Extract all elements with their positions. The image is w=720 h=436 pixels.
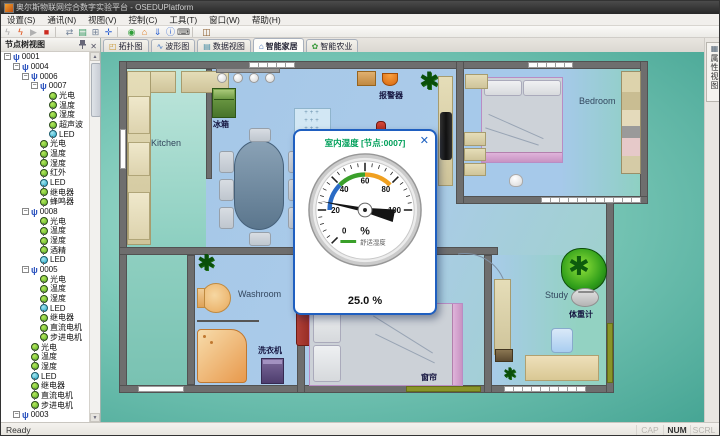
tree-item-label: 0006 bbox=[40, 72, 58, 81]
menu-item[interactable]: 窗口(W) bbox=[203, 14, 246, 26]
tree-item-红外[interactable]: 红外 bbox=[1, 168, 90, 178]
tree-item-湿度[interactable]: 湿度 bbox=[1, 362, 90, 372]
tree-item-label: 0001 bbox=[22, 52, 40, 61]
alarm-bracket[interactable] bbox=[357, 71, 376, 86]
tab-label: 智能家居 bbox=[266, 41, 298, 52]
light-bulb-2[interactable] bbox=[233, 73, 243, 83]
sensor-icon bbox=[49, 92, 57, 100]
bush-plant bbox=[561, 248, 607, 292]
window-bottom-right bbox=[504, 386, 586, 392]
toolbar-separator bbox=[117, 27, 123, 37]
sensor-icon bbox=[40, 295, 48, 303]
dining-chair bbox=[249, 128, 271, 142]
light-bulb-4[interactable] bbox=[265, 73, 275, 83]
washbasin-tank bbox=[197, 288, 205, 308]
menu-item[interactable]: 通讯(N) bbox=[41, 14, 82, 26]
tree-item-0001[interactable]: −ψ0001 bbox=[1, 52, 90, 62]
device-label-alarm: 报警器 bbox=[379, 90, 403, 101]
node-tree: −ψ0001−ψ0004−ψ0006−ψ0007光电温度湿度超声波LED光电温度… bbox=[1, 52, 90, 422]
sensor-icon bbox=[40, 159, 48, 167]
sensor-icon bbox=[31, 362, 39, 370]
dining-table bbox=[234, 140, 284, 230]
tree-item-0005[interactable]: −ψ0005 bbox=[1, 265, 90, 275]
status-bar: Ready CAPNUMSCRL bbox=[1, 422, 720, 436]
tree-item-温度[interactable]: 温度 bbox=[1, 284, 90, 294]
led-icon bbox=[40, 304, 48, 312]
tab-icon: ⌂ bbox=[259, 42, 264, 51]
plant-icon: ✱ bbox=[503, 367, 516, 383]
close-icon[interactable]: ✕ bbox=[420, 134, 429, 147]
washbasin bbox=[201, 283, 231, 313]
led-icon bbox=[40, 256, 48, 264]
alarm-dome[interactable] bbox=[382, 73, 398, 86]
svg-text:80: 80 bbox=[381, 185, 390, 194]
room-label-bedroom1: Bedroom bbox=[579, 96, 616, 106]
sensor-icon bbox=[40, 188, 48, 196]
tree-item-label: LED bbox=[41, 372, 57, 381]
fridge[interactable] bbox=[212, 88, 236, 118]
tree-item-温度[interactable]: 温度 bbox=[1, 226, 90, 236]
sensor-icon bbox=[40, 140, 48, 148]
bed-bottom bbox=[309, 303, 463, 386]
weight-scale[interactable] bbox=[571, 288, 599, 307]
shower-tub bbox=[197, 329, 247, 383]
svg-text:20: 20 bbox=[331, 206, 340, 215]
dining-chair bbox=[219, 207, 234, 229]
toolbar-info-icon[interactable]: ⓘ bbox=[164, 26, 177, 38]
sensor-icon bbox=[31, 382, 39, 390]
tree-item-湿度[interactable]: 湿度 bbox=[1, 158, 90, 168]
dialog-title: 室内湿度 [节点:0007] bbox=[295, 137, 435, 149]
sensor-icon bbox=[40, 150, 48, 158]
plant-icon: ✱ bbox=[197, 252, 215, 274]
gauge-unit: % bbox=[360, 226, 370, 238]
panel-header: 节点树视图 ✕ bbox=[1, 38, 100, 52]
kitchen-cabinet bbox=[128, 192, 150, 240]
tree-item-label: LED bbox=[50, 304, 66, 313]
room-label-kitchen: Kitchen bbox=[151, 138, 181, 148]
sensor-icon bbox=[31, 391, 39, 399]
tree-item-光电[interactable]: 光电 bbox=[1, 274, 90, 284]
property-view-tab[interactable]: ▦ 属性视图 bbox=[706, 42, 720, 102]
tab-智能农业[interactable]: ✿智能农业 bbox=[306, 39, 359, 53]
sensor-icon bbox=[40, 217, 48, 225]
led-icon bbox=[49, 130, 57, 138]
tree-item-蜂鸣器[interactable]: 蜂鸣器 bbox=[1, 197, 90, 207]
tree-item-label: 0007 bbox=[49, 81, 67, 90]
property-view-icon: ▦ bbox=[707, 44, 720, 53]
tree-item-label: 超声波 bbox=[59, 119, 83, 130]
toolbar-online-lightning-icon[interactable]: ϟ bbox=[14, 26, 27, 38]
toolbar-separator bbox=[192, 27, 198, 37]
tree-item-label: LED bbox=[59, 130, 75, 139]
title-bar: 奥尔斯物联网综合数字实验平台 - OSEDUPlatform bbox=[1, 1, 720, 14]
toolbar-exit-icon[interactable]: ◫ bbox=[200, 26, 213, 38]
bed-footer bbox=[452, 304, 462, 385]
tab-icon: ▤ bbox=[203, 42, 211, 51]
tab-波形图[interactable]: ∿波形图 bbox=[151, 39, 196, 53]
tree-item-0003[interactable]: −ψ0003 bbox=[1, 410, 90, 420]
toolbar-serial-icon[interactable]: ⇄ bbox=[63, 26, 76, 38]
plant-icon: ✱ bbox=[419, 70, 439, 94]
cabinet-block bbox=[464, 163, 486, 176]
study-shelf-base bbox=[495, 349, 513, 362]
tree-item-0007[interactable]: −ψ0007 bbox=[1, 81, 90, 91]
expand-box-icon[interactable]: − bbox=[31, 82, 38, 89]
tree-item-label: 湿度 bbox=[41, 361, 57, 372]
tree-item-label: 湿度 bbox=[50, 293, 66, 304]
menu-item[interactable]: 控制(C) bbox=[123, 14, 164, 26]
expand-box-icon[interactable]: − bbox=[22, 73, 29, 80]
node-tree-panel: 节点树视图 ✕ −ψ0001−ψ0004−ψ0006−ψ0007光电温度湿度超声… bbox=[1, 38, 101, 422]
toolbar-offline-lightning-icon[interactable]: ϟ bbox=[1, 26, 14, 38]
tree-item-label: 红外 bbox=[50, 167, 66, 178]
pillow bbox=[523, 80, 561, 96]
dining-chair bbox=[219, 179, 234, 201]
main-area: ◰拓扑图∿波形图▤数据视图⌂智能家居✿智能农业 bbox=[101, 38, 720, 422]
keyboard-indicators: CAPNUMSCRL bbox=[636, 425, 717, 435]
sensor-icon bbox=[49, 101, 57, 109]
window-bottom-left bbox=[138, 386, 184, 392]
tree-item-label: 酒精 bbox=[50, 245, 66, 256]
menu-item[interactable]: 视图(V) bbox=[82, 14, 122, 26]
vase bbox=[509, 174, 523, 187]
tree-item-温度[interactable]: 温度 bbox=[1, 149, 90, 159]
room-label-study: Study bbox=[545, 290, 568, 300]
humidity-dialog: 室内湿度 [节点:0007] ✕ 020406080100 % 舒适湿度 25.… bbox=[293, 129, 437, 315]
light-bulb-3[interactable] bbox=[249, 73, 259, 83]
sensor-icon bbox=[40, 333, 48, 341]
antenna-icon: ψ bbox=[31, 266, 38, 274]
toolbar-image-view-icon[interactable]: ▤ bbox=[76, 26, 89, 38]
window-top-2 bbox=[528, 62, 573, 68]
floorplan-canvas[interactable]: Kitchen 冰箱 +++++++++ 报警器 bbox=[101, 52, 704, 422]
device-label-scale: 体重计 bbox=[569, 309, 593, 320]
toolbar-keyboard-icon[interactable]: ⌨ bbox=[177, 26, 190, 38]
sensor-icon bbox=[40, 314, 48, 322]
sensor-icon bbox=[40, 237, 48, 245]
tab-label: 智能农业 bbox=[320, 41, 352, 52]
antenna-icon: ψ bbox=[22, 63, 29, 71]
tab-拓扑图[interactable]: ◰拓扑图 bbox=[103, 39, 149, 53]
antenna-icon: ψ bbox=[22, 411, 29, 419]
tab-数据视图[interactable]: ▤数据视图 bbox=[197, 39, 251, 53]
bed-top bbox=[481, 77, 563, 163]
pillow bbox=[484, 80, 522, 96]
tree-item-0006[interactable]: −ψ0006 bbox=[1, 71, 90, 81]
right-dock-strip: ▦ 属性视图 bbox=[704, 38, 720, 422]
study-shelf bbox=[494, 279, 511, 355]
sensor-icon bbox=[40, 169, 48, 177]
tree-scrollbar[interactable]: ▲ ▼ bbox=[89, 52, 100, 422]
sensor-icon bbox=[40, 246, 48, 254]
device-label-washer: 洗衣机 bbox=[258, 345, 282, 356]
tree-item-0004[interactable]: −ψ0004 bbox=[1, 62, 90, 72]
tree-item-湿度[interactable]: 湿度 bbox=[1, 236, 90, 246]
tab-icon: ✿ bbox=[312, 42, 319, 51]
tree-item-label: 0003 bbox=[31, 410, 49, 419]
menu-item[interactable]: 设置(S) bbox=[1, 14, 41, 26]
humidity-reading: 25.0 % bbox=[295, 295, 435, 307]
tree-item-label: LED bbox=[50, 255, 66, 264]
toolbar-stop-icon[interactable]: ■ bbox=[40, 26, 53, 38]
tree-item-温度[interactable]: 温度 bbox=[1, 100, 90, 110]
window-right-olive bbox=[607, 323, 613, 383]
toolbar-separator bbox=[55, 27, 61, 37]
cabinet-block bbox=[464, 148, 486, 161]
tab-icon: ∿ bbox=[157, 42, 164, 51]
pillow bbox=[313, 345, 341, 382]
tree-item-湿度[interactable]: 湿度 bbox=[1, 294, 90, 304]
tree-item-继电器[interactable]: 继电器 bbox=[1, 187, 90, 197]
svg-text:60: 60 bbox=[361, 176, 370, 185]
antenna-icon: ψ bbox=[13, 53, 20, 61]
menu-item[interactable]: 工具(T) bbox=[163, 14, 203, 26]
sensor-icon bbox=[31, 343, 39, 351]
wall-bedroom1-left bbox=[456, 61, 464, 204]
property-view-label: 属性视图 bbox=[709, 54, 720, 90]
expand-box-icon[interactable]: − bbox=[13, 63, 20, 70]
app-icon bbox=[4, 3, 14, 13]
tree-item-label: 0004 bbox=[31, 62, 49, 71]
expand-box-icon[interactable]: − bbox=[22, 208, 29, 215]
scroll-up-icon[interactable]: ▲ bbox=[90, 52, 100, 61]
tv[interactable] bbox=[440, 112, 452, 160]
tab-strip: ◰拓扑图∿波形图▤数据视图⌂智能家居✿智能农业 bbox=[101, 38, 720, 53]
toolbar-anchor-icon[interactable]: ✛ bbox=[102, 26, 115, 38]
tree-item-光电[interactable]: 光电 bbox=[1, 139, 90, 149]
sensor-icon bbox=[31, 401, 39, 409]
window-left bbox=[120, 129, 126, 169]
antenna-icon: ψ bbox=[31, 208, 38, 216]
tree-item-label: 0008 bbox=[40, 207, 58, 216]
indicator-cap: CAP bbox=[636, 425, 663, 435]
expand-box-icon[interactable]: − bbox=[13, 411, 20, 418]
sensor-icon bbox=[40, 275, 48, 283]
tab-智能家居[interactable]: ⌂智能家居 bbox=[253, 38, 304, 53]
sensor-icon bbox=[49, 111, 57, 119]
svg-text:40: 40 bbox=[340, 185, 349, 194]
light-bulb-1[interactable] bbox=[217, 73, 227, 83]
sensor-icon bbox=[40, 198, 48, 206]
led-icon bbox=[31, 372, 39, 380]
app-window: 奥尔斯物联网综合数字实验平台 - OSEDUPlatform 设置(S)通讯(N… bbox=[0, 0, 720, 436]
scroll-thumb[interactable] bbox=[91, 63, 101, 117]
bed-footer bbox=[482, 152, 562, 162]
tree-item-label: 蜂鸣器 bbox=[50, 196, 74, 207]
status-text: Ready bbox=[6, 425, 31, 435]
toolbar: ϟϟ▶■⇄▤⊞✛◉⌂⇓ⓘ⌨◫ bbox=[1, 26, 720, 38]
panel-title: 节点树视图 bbox=[5, 40, 45, 49]
tree-item-LED[interactable]: LED bbox=[1, 129, 90, 139]
menu-item[interactable]: 帮助(H) bbox=[246, 14, 287, 26]
dining-chair bbox=[219, 151, 234, 173]
sensor-icon bbox=[40, 227, 48, 235]
tree-item-超声波[interactable]: 超声波 bbox=[1, 120, 90, 130]
led-icon bbox=[40, 179, 48, 187]
scroll-down-icon[interactable]: ▼ bbox=[90, 413, 100, 422]
tab-icon: ◰ bbox=[109, 42, 117, 51]
indicator-num: NUM bbox=[663, 425, 690, 435]
sensor-icon bbox=[40, 285, 48, 293]
tree-item-label: 步进电机 bbox=[41, 400, 73, 411]
antenna-icon: ψ bbox=[40, 82, 47, 90]
expand-box-icon[interactable]: − bbox=[22, 266, 29, 273]
tab-label: 波形图 bbox=[165, 41, 189, 52]
antenna-icon: ψ bbox=[31, 72, 38, 80]
wardrobe bbox=[621, 71, 641, 174]
toolbar-home-icon[interactable]: ⌂ bbox=[138, 26, 151, 38]
device-label-curtain[interactable]: 窗帘 bbox=[421, 372, 437, 383]
tree-item-0008[interactable]: −ψ0008 bbox=[1, 207, 90, 217]
sensor-icon bbox=[31, 353, 39, 361]
tree-item-步进电机[interactable]: 步进电机 bbox=[1, 332, 90, 342]
tree-item-酒精[interactable]: 酒精 bbox=[1, 245, 90, 255]
tree-item-label: 0005 bbox=[40, 265, 58, 274]
tree-item-步进电机[interactable]: 步进电机 bbox=[1, 400, 90, 410]
utility-floor bbox=[127, 255, 187, 385]
tab-label: 拓扑图 bbox=[119, 41, 143, 52]
tree-item-LED[interactable]: LED bbox=[1, 178, 90, 188]
tree-item-LED[interactable]: LED bbox=[1, 255, 90, 265]
kitchen-stove bbox=[128, 142, 150, 176]
menu-bar: 设置(S)通讯(N)视图(V)控制(C)工具(T)窗口(W)帮助(H) bbox=[1, 14, 720, 26]
window-bedroom1-door bbox=[541, 197, 641, 203]
cabinet-block bbox=[464, 132, 486, 146]
device-label-fridge: 冰箱 bbox=[213, 119, 229, 130]
expand-box-icon[interactable]: − bbox=[4, 53, 11, 60]
nightstand bbox=[465, 74, 488, 89]
tree-item-光电[interactable]: 光电 bbox=[1, 216, 90, 226]
room-label-washroom: Washroom bbox=[238, 289, 281, 299]
tree-item-label: LED bbox=[50, 178, 66, 187]
wall-right-upper bbox=[640, 61, 648, 204]
toolbar-panel-layout-icon[interactable]: ⊞ bbox=[89, 26, 102, 38]
study-desk bbox=[525, 355, 599, 381]
dining-chair bbox=[249, 232, 271, 246]
gauge-legend: 舒适湿度 bbox=[360, 237, 386, 246]
toolbar-download-icon[interactable]: ⇓ bbox=[151, 26, 164, 38]
tree-item-LED[interactable]: LED bbox=[1, 303, 90, 313]
toolbar-run-icon[interactable]: ◉ bbox=[125, 26, 138, 38]
window-title: 奥尔斯物联网综合数字实验平台 - OSEDUPlatform bbox=[16, 1, 193, 14]
humidity-gauge: 020406080100 % 舒适湿度 bbox=[306, 151, 424, 269]
washing-machine[interactable] bbox=[261, 358, 284, 384]
kitchen-sink bbox=[128, 96, 150, 134]
sensor-icon bbox=[49, 121, 57, 129]
toolbar-play-icon[interactable]: ▶ bbox=[27, 26, 40, 38]
wall-left bbox=[119, 61, 127, 393]
window-bottom-olive bbox=[406, 386, 481, 392]
tree-item-光电[interactable]: 光电 bbox=[1, 91, 90, 101]
sensor-icon bbox=[40, 324, 48, 332]
svg-text:0: 0 bbox=[342, 227, 347, 236]
washroom-divider bbox=[197, 320, 259, 322]
study-chair bbox=[551, 328, 573, 353]
wall-washroom-left bbox=[187, 255, 195, 385]
tab-label: 数据视图 bbox=[213, 41, 245, 52]
indicator-scrl: SCRL bbox=[690, 425, 717, 435]
